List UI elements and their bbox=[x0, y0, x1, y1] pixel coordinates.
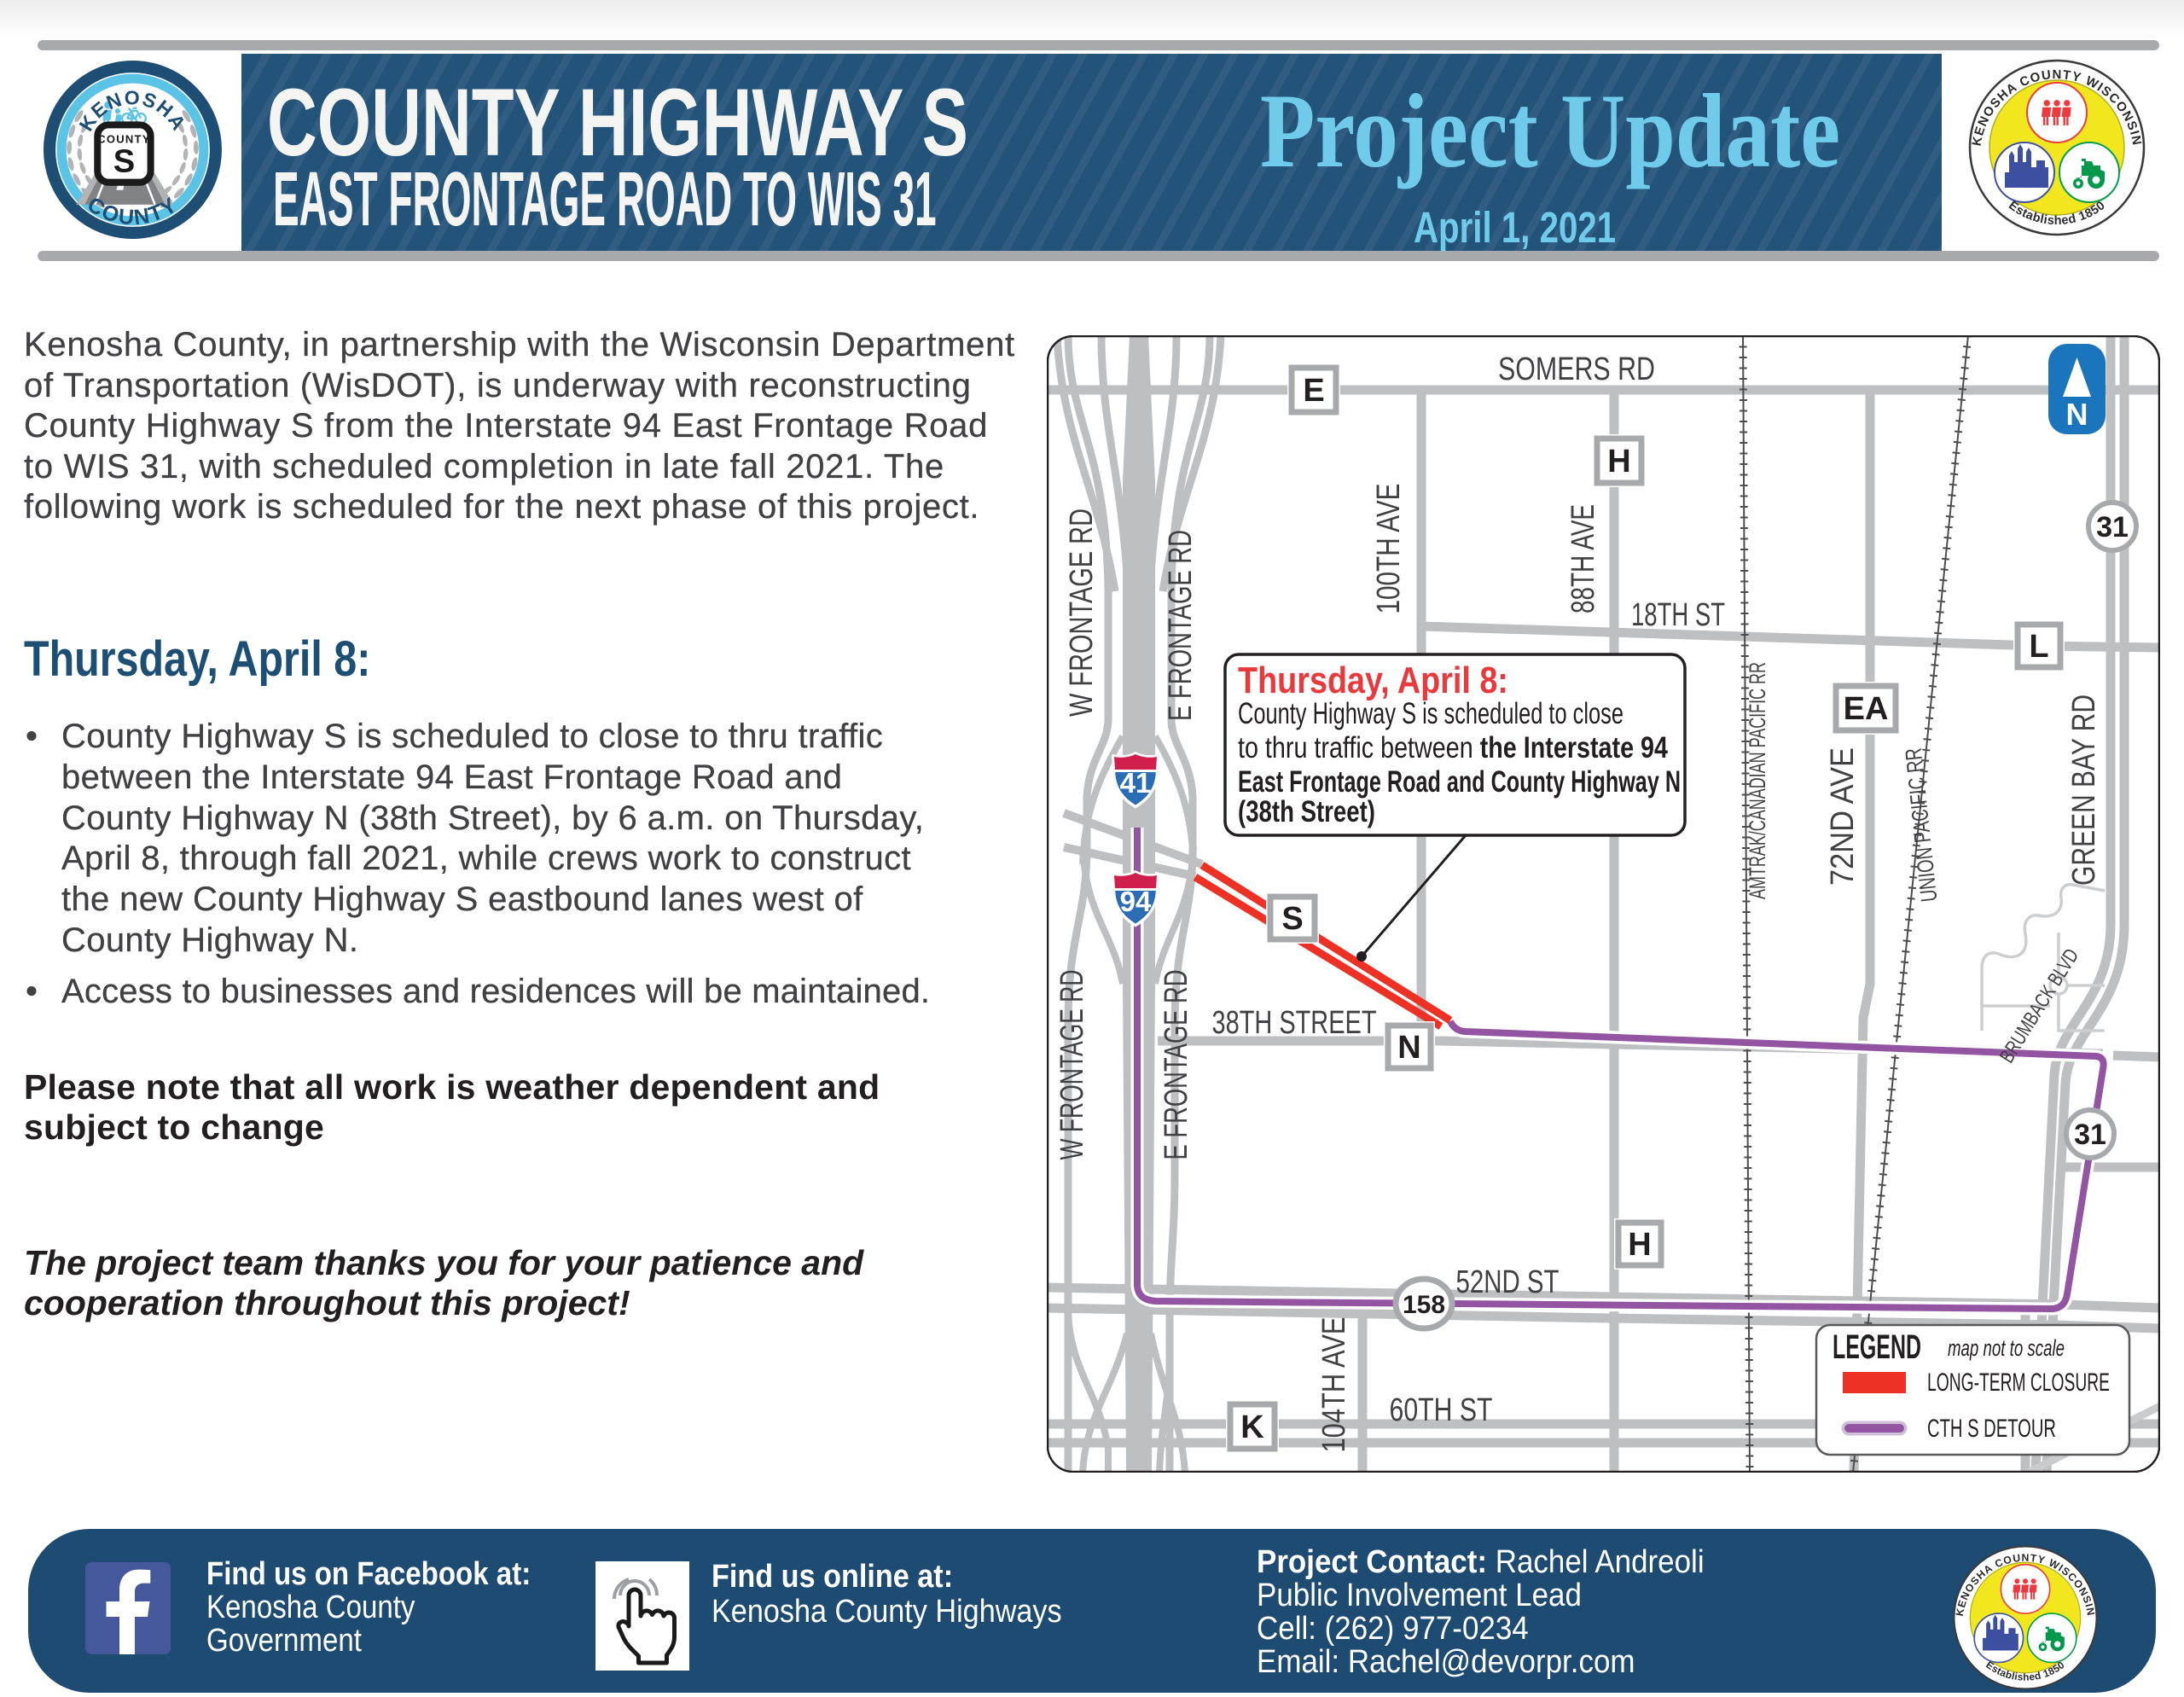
svg-text:100TH AVE: 100TH AVE bbox=[1371, 484, 1407, 614]
svg-text:31: 31 bbox=[2074, 1119, 2106, 1151]
svg-text:E FRONTAGE RD: E FRONTAGE RD bbox=[1159, 970, 1194, 1160]
svg-text:LONG-TERM CLOSURE: LONG-TERM CLOSURE bbox=[1927, 1369, 2110, 1397]
svg-text:94: 94 bbox=[1120, 886, 1152, 917]
svg-text:41: 41 bbox=[1120, 767, 1152, 799]
svg-text:38TH STREET: 38TH STREET bbox=[1212, 1005, 1377, 1041]
svg-text:L: L bbox=[2029, 629, 2048, 665]
svg-text:158: 158 bbox=[1403, 1291, 1445, 1319]
svg-text:W FRONTAGE RD: W FRONTAGE RD bbox=[1054, 970, 1090, 1160]
svg-text:County Highway S is scheduled: County Highway S is scheduled to close bbox=[1238, 697, 1623, 730]
svg-text:52ND ST: 52ND ST bbox=[1456, 1264, 1560, 1300]
svg-text:GREEN BAY RD: GREEN BAY RD bbox=[2066, 694, 2102, 886]
svg-text:N: N bbox=[2066, 397, 2088, 432]
svg-text:E FRONTAGE RD: E FRONTAGE RD bbox=[1163, 530, 1199, 721]
svg-text:SOMERS RD: SOMERS RD bbox=[1498, 352, 1655, 387]
svg-text:EA: EA bbox=[1844, 691, 1889, 727]
svg-text:AMTRAK/CANADIAN PACIFIC RR: AMTRAK/CANADIAN PACIFIC RR bbox=[1745, 662, 1770, 899]
svg-text:CTH S DETOUR: CTH S DETOUR bbox=[1927, 1415, 2056, 1443]
svg-text:88TH AVE: 88TH AVE bbox=[1565, 504, 1601, 613]
svg-text:W FRONTAGE RD: W FRONTAGE RD bbox=[1064, 509, 1100, 717]
svg-text:18TH ST: 18TH ST bbox=[1631, 597, 1725, 633]
svg-text:to thru traffic between the In: to thru traffic between the Interstate 9… bbox=[1238, 731, 1668, 764]
svg-text:East Frontage Road and County: East Frontage Road and County Highway N bbox=[1238, 765, 1681, 799]
svg-text:H: H bbox=[1607, 444, 1630, 479]
svg-text:S: S bbox=[113, 143, 135, 180]
svg-text:60TH ST: 60TH ST bbox=[1390, 1392, 1493, 1428]
svg-text:N: N bbox=[1397, 1030, 1420, 1066]
svg-text:LEGEND: LEGEND bbox=[1833, 1328, 1921, 1366]
svg-text:E: E bbox=[1303, 373, 1324, 409]
svg-text:72ND AVE: 72ND AVE bbox=[1825, 747, 1861, 886]
svg-text:Thursday, April 8:: Thursday, April 8: bbox=[1238, 660, 1508, 701]
svg-text:H: H bbox=[1628, 1227, 1651, 1263]
svg-text:K: K bbox=[1240, 1409, 1264, 1445]
svg-text:S: S bbox=[1281, 901, 1303, 937]
svg-text:(38th Street): (38th Street) bbox=[1238, 795, 1375, 828]
svg-text:map not to scale: map not to scale bbox=[1948, 1335, 2065, 1361]
svg-text:104TH AVE: 104TH AVE bbox=[1316, 1317, 1352, 1453]
svg-text:31: 31 bbox=[2096, 511, 2129, 543]
